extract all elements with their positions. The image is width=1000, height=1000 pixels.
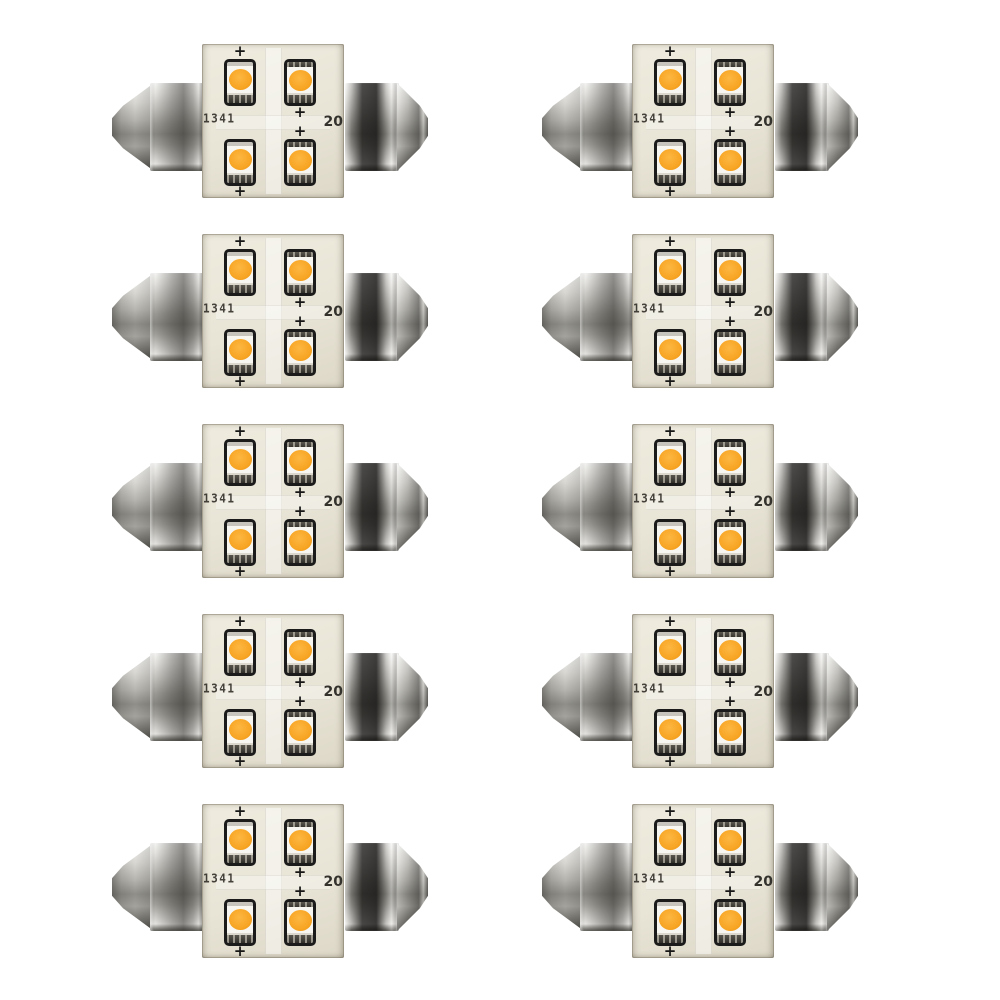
- led-chip-bottom-right: [284, 899, 316, 946]
- pcb-trace-vertical: [265, 808, 282, 954]
- led-emitter: [659, 639, 682, 660]
- led-chip-bottom-contact: [227, 283, 253, 293]
- led-chip-top-contact: [657, 62, 683, 66]
- led-pcb-board: + + + + 1341 20: [202, 234, 344, 388]
- end-cap-right-tip: [397, 843, 428, 931]
- led-chip-bottom-left: [654, 329, 686, 376]
- end-cap-right-barrel: [775, 273, 829, 361]
- led-chip-top-contact: [657, 632, 683, 636]
- led-chip-top-contact: [287, 712, 313, 717]
- led-emitter: [289, 340, 312, 361]
- led-chip-bottom-contact: [287, 473, 313, 483]
- led-chip-bottom-contact: [287, 663, 313, 673]
- pcb-trace-vertical: [265, 238, 282, 384]
- led-chip-bottom-contact: [657, 473, 683, 483]
- led-chip-top-left: [654, 819, 686, 866]
- led-emitter: [719, 450, 742, 471]
- led-pcb-board: + + + + 1341 20: [202, 614, 344, 768]
- led-emitter: [289, 260, 312, 281]
- led-chip-top-contact: [657, 332, 683, 336]
- led-emitter: [229, 909, 252, 930]
- festoon-led-bulb: + + + + 1341 20: [542, 424, 858, 578]
- led-emitter: [289, 70, 312, 91]
- led-chip-bottom-contact: [287, 933, 313, 943]
- festoon-led-bulb: + + + + 1341 20: [112, 424, 428, 578]
- led-chip-top-left: [224, 249, 256, 296]
- end-cap-left-barrel: [580, 273, 634, 361]
- end-cap-right: [775, 843, 858, 931]
- polarity-plus-marker: +: [294, 695, 307, 707]
- led-chip-top-contact: [227, 522, 253, 526]
- led-chip-top-left: [224, 629, 256, 676]
- pcb-date-code-label: 1341: [633, 301, 666, 316]
- polarity-plus-marker: +: [664, 375, 677, 387]
- led-chip-top-contact: [227, 902, 253, 906]
- pcb-date-code-label: 1341: [633, 111, 666, 126]
- polarity-plus-marker: +: [234, 805, 247, 817]
- led-emitter: [659, 529, 682, 550]
- led-emitter: [229, 639, 252, 660]
- polarity-plus-marker: +: [294, 676, 307, 688]
- pcb-right-marking-label: 20: [324, 494, 343, 510]
- led-emitter: [719, 70, 742, 91]
- led-chip-top-contact: [227, 252, 253, 256]
- led-chip-bottom-left: [654, 899, 686, 946]
- led-chip-bottom-contact: [287, 853, 313, 863]
- polarity-plus-marker: +: [234, 45, 247, 57]
- led-emitter: [659, 149, 682, 170]
- end-cap-right: [345, 843, 428, 931]
- end-cap-left-barrel: [150, 83, 204, 171]
- end-cap-left-tip: [112, 273, 154, 361]
- led-chip-bottom-contact: [717, 283, 743, 293]
- end-cap-left: [542, 83, 637, 171]
- led-chip-top-left: [224, 439, 256, 486]
- led-emitter: [229, 449, 252, 470]
- led-pcb-board: + + + + 1341 20: [632, 234, 774, 388]
- polarity-plus-marker: +: [294, 885, 307, 897]
- end-cap-left-tip: [542, 653, 584, 741]
- festoon-led-bulb: + + + + 1341 20: [112, 234, 428, 388]
- festoon-led-bulb: + + + + 1341 20: [112, 614, 428, 768]
- led-chip-top-right: [284, 249, 316, 296]
- end-cap-left: [542, 653, 637, 741]
- led-chip-top-contact: [287, 822, 313, 827]
- end-cap-left: [542, 463, 637, 551]
- end-cap-left-tip: [112, 843, 154, 931]
- end-cap-right-tip: [827, 83, 858, 171]
- led-chip-top-contact: [287, 252, 313, 257]
- led-emitter: [229, 149, 252, 170]
- led-chip-top-contact: [287, 62, 313, 67]
- led-chip-top-left: [224, 59, 256, 106]
- pcb-right-marking-label: 20: [754, 304, 773, 320]
- led-chip-top-contact: [227, 712, 253, 716]
- led-chip-top-contact: [287, 522, 313, 527]
- end-cap-right-tip: [397, 83, 428, 171]
- led-chip-bottom-contact: [717, 173, 743, 183]
- led-chip-top-left: [224, 819, 256, 866]
- pcb-date-code-label: 1341: [203, 871, 236, 886]
- pcb-right-marking-label: 20: [324, 684, 343, 700]
- pcb-trace-vertical: [265, 618, 282, 764]
- led-chip-bottom-right: [714, 329, 746, 376]
- pcb-trace-vertical: [695, 48, 712, 194]
- end-cap-right-tip: [827, 273, 858, 361]
- polarity-plus-marker: +: [664, 615, 677, 627]
- polarity-plus-marker: +: [664, 945, 677, 957]
- end-cap-right: [345, 83, 428, 171]
- pcb-right-marking-label: 20: [324, 874, 343, 890]
- end-cap-left: [112, 83, 207, 171]
- led-chip-top-left: [654, 629, 686, 676]
- end-cap-right: [775, 83, 858, 171]
- end-cap-left-barrel: [580, 83, 634, 171]
- end-cap-right: [345, 463, 428, 551]
- polarity-plus-marker: +: [234, 615, 247, 627]
- led-chip-top-contact: [227, 332, 253, 336]
- led-chip-top-contact: [717, 142, 743, 147]
- end-cap-left-tip: [542, 273, 584, 361]
- pcb-date-code-label: 1341: [203, 491, 236, 506]
- led-chip-top-right: [714, 59, 746, 106]
- led-chip-bottom-contact: [657, 283, 683, 293]
- led-chip-top-contact: [287, 902, 313, 907]
- end-cap-right-barrel: [345, 83, 399, 171]
- festoon-led-bulb: + + + + 1341 20: [542, 44, 858, 198]
- led-chip-bottom-contact: [717, 853, 743, 863]
- end-cap-left-barrel: [150, 273, 204, 361]
- led-chip-bottom-left: [224, 329, 256, 376]
- end-cap-left-barrel: [580, 463, 634, 551]
- led-chip-top-left: [654, 59, 686, 106]
- led-chip-top-right: [284, 59, 316, 106]
- led-pcb-board: + + + + 1341 20: [202, 424, 344, 578]
- polarity-plus-marker: +: [294, 866, 307, 878]
- festoon-led-bulb: + + + + 1341 20: [542, 614, 858, 768]
- end-cap-left: [542, 843, 637, 931]
- end-cap-right: [345, 273, 428, 361]
- led-chip-bottom-contact: [717, 743, 743, 753]
- led-emitter: [289, 720, 312, 741]
- pcb-right-marking-label: 20: [754, 684, 773, 700]
- end-cap-right-tip: [827, 463, 858, 551]
- led-chip-bottom-left: [654, 519, 686, 566]
- led-emitter: [289, 150, 312, 171]
- end-cap-left: [542, 273, 637, 361]
- pcb-date-code-label: 1341: [203, 111, 236, 126]
- led-emitter: [659, 909, 682, 930]
- led-chip-bottom-contact: [287, 173, 313, 183]
- led-emitter: [659, 69, 682, 90]
- led-chip-top-right: [714, 249, 746, 296]
- led-chip-top-contact: [717, 252, 743, 257]
- polarity-plus-marker: +: [724, 486, 737, 498]
- led-chip-bottom-left: [224, 519, 256, 566]
- led-chip-bottom-contact: [287, 553, 313, 563]
- polarity-plus-marker: +: [724, 505, 737, 517]
- end-cap-left-barrel: [150, 463, 204, 551]
- led-chip-top-contact: [717, 332, 743, 337]
- led-chip-bottom-contact: [287, 283, 313, 293]
- led-emitter: [289, 830, 312, 851]
- polarity-plus-marker: +: [664, 565, 677, 577]
- led-emitter: [659, 339, 682, 360]
- end-cap-right-barrel: [775, 463, 829, 551]
- led-emitter: [719, 260, 742, 281]
- polarity-plus-marker: +: [234, 425, 247, 437]
- polarity-plus-marker: +: [724, 106, 737, 118]
- pcb-trace-vertical: [695, 618, 712, 764]
- end-cap-right: [775, 273, 858, 361]
- led-chip-bottom-left: [224, 899, 256, 946]
- end-cap-left-barrel: [580, 843, 634, 931]
- end-cap-left-tip: [542, 83, 584, 171]
- led-chip-top-contact: [717, 712, 743, 717]
- polarity-plus-marker: +: [234, 375, 247, 387]
- led-chip-bottom-contact: [227, 663, 253, 673]
- led-chip-top-right: [714, 819, 746, 866]
- festoon-led-bulb: + + + + 1341 20: [112, 804, 428, 958]
- led-chip-top-contact: [657, 522, 683, 526]
- end-cap-right-barrel: [775, 843, 829, 931]
- led-chip-bottom-left: [654, 709, 686, 756]
- led-chip-top-contact: [657, 442, 683, 446]
- pcb-right-marking-label: 20: [754, 494, 773, 510]
- polarity-plus-marker: +: [724, 296, 737, 308]
- festoon-led-bulb: + + + + 1341 20: [542, 234, 858, 388]
- end-cap-left: [112, 463, 207, 551]
- led-chip-bottom-contact: [717, 93, 743, 103]
- end-cap-right-barrel: [345, 463, 399, 551]
- polarity-plus-marker: +: [294, 505, 307, 517]
- led-emitter: [719, 830, 742, 851]
- led-chip-top-contact: [287, 442, 313, 447]
- led-chip-bottom-right: [284, 709, 316, 756]
- led-emitter: [719, 150, 742, 171]
- end-cap-right: [775, 653, 858, 741]
- led-chip-top-contact: [717, 442, 743, 447]
- led-emitter: [659, 449, 682, 470]
- led-chip-bottom-left: [224, 709, 256, 756]
- pcb-trace-vertical: [265, 48, 282, 194]
- led-chip-bottom-contact: [657, 853, 683, 863]
- led-chip-top-contact: [287, 632, 313, 637]
- led-pcb-board: + + + + 1341 20: [202, 804, 344, 958]
- polarity-plus-marker: +: [664, 755, 677, 767]
- end-cap-left-tip: [112, 83, 154, 171]
- led-chip-bottom-contact: [287, 743, 313, 753]
- pcb-trace-vertical: [695, 808, 712, 954]
- led-chip-top-contact: [657, 902, 683, 906]
- led-emitter: [229, 719, 252, 740]
- festoon-led-bulb: + + + + 1341 20: [542, 804, 858, 958]
- led-chip-top-contact: [717, 522, 743, 527]
- pcb-right-marking-label: 20: [324, 304, 343, 320]
- led-emitter: [289, 450, 312, 471]
- end-cap-left-tip: [112, 463, 154, 551]
- pcb-trace-vertical: [265, 428, 282, 574]
- end-cap-right-barrel: [345, 843, 399, 931]
- polarity-plus-marker: +: [664, 805, 677, 817]
- led-emitter: [719, 340, 742, 361]
- led-chip-bottom-contact: [657, 93, 683, 103]
- led-chip-top-right: [714, 629, 746, 676]
- pcb-right-marking-label: 20: [324, 114, 343, 130]
- end-cap-right: [345, 653, 428, 741]
- led-emitter: [289, 910, 312, 931]
- led-emitter: [229, 829, 252, 850]
- polarity-plus-marker: +: [234, 755, 247, 767]
- led-chip-bottom-right: [284, 329, 316, 376]
- end-cap-right-barrel: [775, 653, 829, 741]
- led-chip-bottom-right: [714, 139, 746, 186]
- polarity-plus-marker: +: [294, 106, 307, 118]
- pcb-date-code-label: 1341: [633, 871, 666, 886]
- end-cap-left-tip: [542, 843, 584, 931]
- led-pcb-board: + + + + 1341 20: [632, 804, 774, 958]
- led-chip-bottom-left: [654, 139, 686, 186]
- led-emitter: [229, 339, 252, 360]
- polarity-plus-marker: +: [724, 695, 737, 707]
- led-emitter: [289, 530, 312, 551]
- polarity-plus-marker: +: [294, 296, 307, 308]
- end-cap-right-barrel: [775, 83, 829, 171]
- polarity-plus-marker: +: [664, 45, 677, 57]
- end-cap-right-tip: [397, 273, 428, 361]
- polarity-plus-marker: +: [724, 866, 737, 878]
- end-cap-left-barrel: [580, 653, 634, 741]
- led-chip-top-contact: [717, 632, 743, 637]
- led-emitter: [229, 69, 252, 90]
- led-pcb-board: + + + + 1341 20: [632, 614, 774, 768]
- polarity-plus-marker: +: [724, 676, 737, 688]
- polarity-plus-marker: +: [234, 185, 247, 197]
- end-cap-left-tip: [112, 653, 154, 741]
- polarity-plus-marker: +: [294, 125, 307, 137]
- led-chip-bottom-contact: [717, 933, 743, 943]
- led-chip-bottom-contact: [657, 663, 683, 673]
- led-chip-bottom-right: [284, 139, 316, 186]
- led-chip-bottom-contact: [227, 93, 253, 103]
- pcb-right-marking-label: 20: [754, 114, 773, 130]
- led-chip-top-contact: [717, 902, 743, 907]
- led-chip-top-contact: [227, 62, 253, 66]
- led-emitter: [719, 910, 742, 931]
- end-cap-right-barrel: [345, 273, 399, 361]
- led-chip-top-contact: [287, 332, 313, 337]
- polarity-plus-marker: +: [724, 315, 737, 327]
- led-chip-bottom-contact: [717, 473, 743, 483]
- end-cap-left: [112, 843, 207, 931]
- led-chip-bottom-contact: [717, 553, 743, 563]
- led-emitter: [289, 640, 312, 661]
- led-chip-bottom-right: [714, 709, 746, 756]
- end-cap-right-barrel: [345, 653, 399, 741]
- polarity-plus-marker: +: [664, 425, 677, 437]
- led-chip-top-contact: [657, 822, 683, 826]
- end-cap-left: [112, 653, 207, 741]
- festoon-led-bulb: + + + + 1341 20: [112, 44, 428, 198]
- led-pcb-board: + + + + 1341 20: [202, 44, 344, 198]
- led-emitter: [719, 640, 742, 661]
- end-cap-right-tip: [397, 653, 428, 741]
- led-chip-bottom-right: [714, 899, 746, 946]
- led-chip-top-left: [654, 249, 686, 296]
- polarity-plus-marker: +: [664, 185, 677, 197]
- led-chip-top-right: [284, 629, 316, 676]
- led-chip-top-contact: [717, 822, 743, 827]
- led-chip-bottom-right: [284, 519, 316, 566]
- led-pcb-board: + + + + 1341 20: [632, 424, 774, 578]
- led-chip-top-contact: [287, 142, 313, 147]
- led-emitter: [659, 719, 682, 740]
- led-emitter: [659, 259, 682, 280]
- led-emitter: [719, 530, 742, 551]
- led-emitter: [659, 829, 682, 850]
- led-chip-top-contact: [657, 252, 683, 256]
- end-cap-right-tip: [827, 843, 858, 931]
- led-chip-top-right: [284, 439, 316, 486]
- polarity-plus-marker: +: [664, 235, 677, 247]
- pcb-date-code-label: 1341: [203, 301, 236, 316]
- led-chip-top-contact: [227, 442, 253, 446]
- led-emitter: [229, 259, 252, 280]
- end-cap-right-tip: [397, 463, 428, 551]
- end-cap-left-tip: [542, 463, 584, 551]
- pcb-trace-vertical: [695, 238, 712, 384]
- polarity-plus-marker: +: [234, 235, 247, 247]
- led-chip-top-contact: [657, 142, 683, 146]
- pcb-date-code-label: 1341: [633, 681, 666, 696]
- led-chip-bottom-right: [714, 519, 746, 566]
- pcb-right-marking-label: 20: [754, 874, 773, 890]
- led-chip-bottom-contact: [227, 473, 253, 483]
- led-chip-top-right: [714, 439, 746, 486]
- led-chip-bottom-contact: [287, 363, 313, 373]
- led-chip-bottom-contact: [287, 93, 313, 103]
- led-emitter: [719, 720, 742, 741]
- led-emitter: [229, 529, 252, 550]
- end-cap-left-barrel: [150, 653, 204, 741]
- polarity-plus-marker: +: [724, 885, 737, 897]
- led-chip-top-contact: [227, 632, 253, 636]
- polarity-plus-marker: +: [234, 945, 247, 957]
- led-chip-top-left: [654, 439, 686, 486]
- polarity-plus-marker: +: [294, 315, 307, 327]
- led-chip-bottom-contact: [717, 663, 743, 673]
- led-chip-top-contact: [227, 142, 253, 146]
- led-chip-bottom-contact: [717, 363, 743, 373]
- led-chip-top-contact: [717, 62, 743, 67]
- polarity-plus-marker: +: [724, 125, 737, 137]
- led-chip-bottom-contact: [227, 853, 253, 863]
- polarity-plus-marker: +: [294, 486, 307, 498]
- led-chip-top-contact: [227, 822, 253, 826]
- led-chip-bottom-left: [224, 139, 256, 186]
- pcb-trace-vertical: [695, 428, 712, 574]
- led-chip-top-right: [284, 819, 316, 866]
- end-cap-left: [112, 273, 207, 361]
- polarity-plus-marker: +: [234, 565, 247, 577]
- pcb-date-code-label: 1341: [203, 681, 236, 696]
- end-cap-right-tip: [827, 653, 858, 741]
- end-cap-right: [775, 463, 858, 551]
- pcb-date-code-label: 1341: [633, 491, 666, 506]
- product-photo-canvas: + + + + 1341 20: [0, 0, 1000, 1000]
- led-chip-top-contact: [657, 712, 683, 716]
- led-pcb-board: + + + + 1341 20: [632, 44, 774, 198]
